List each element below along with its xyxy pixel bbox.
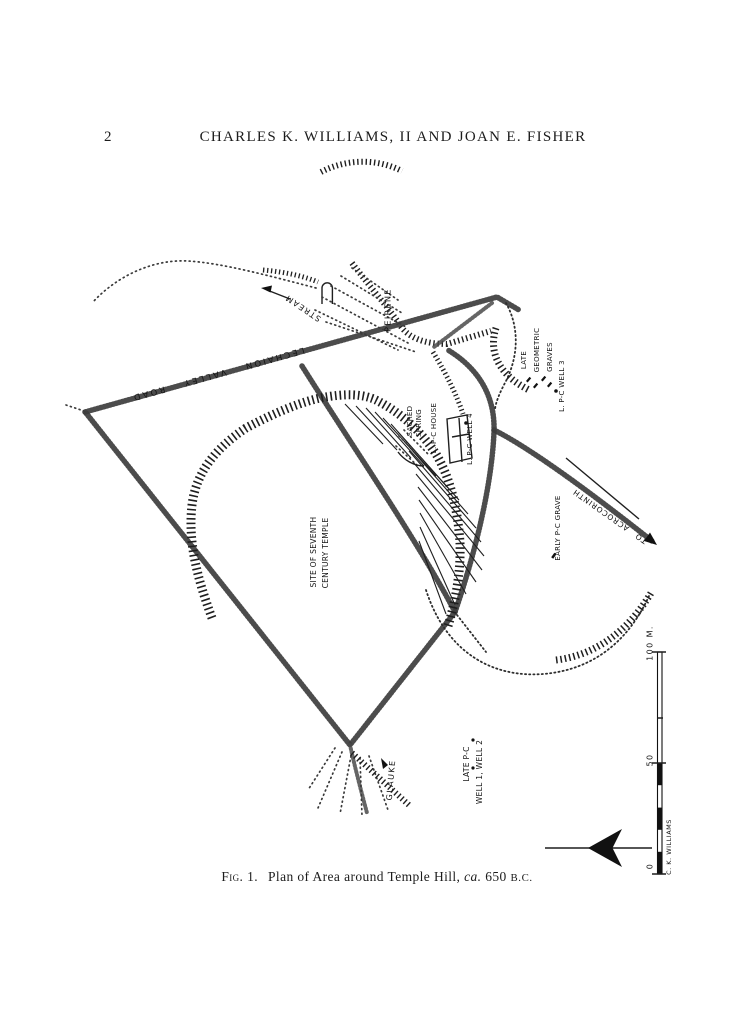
caption-year: 650 <box>485 869 506 884</box>
label-late-pc: LATE P-C <box>462 746 471 781</box>
label-site-line1: SITE OF SEVENTH <box>309 517 318 588</box>
road-end-dotted <box>66 405 84 411</box>
label-spring: SPRING <box>415 409 423 437</box>
label-stream: STREAM <box>283 293 322 324</box>
label-wells-1-2: WELL 1, WELL 2 <box>475 740 484 804</box>
label-site-line2: CENTURY TEMPLE <box>321 518 330 589</box>
figure-number: Fig. 1. <box>221 869 258 884</box>
map-labels: STREAM PEIRENE LECHAION VALLEY ROAD LATE… <box>130 288 649 804</box>
geometric-grave-markers <box>526 376 552 389</box>
cartographer-credit: C. K. WILLIAMS <box>665 819 673 875</box>
well-markers <box>464 389 558 769</box>
label-well3: L. P-C WELL 3 <box>558 360 566 412</box>
figure-caption: Fig. 1.Plan of Area around Temple Hill, … <box>0 869 754 885</box>
stream-arrowhead <box>261 286 272 293</box>
scale-100-label: 100 M. <box>646 625 655 661</box>
label-late: LATE <box>520 351 528 369</box>
crossroads-to-glauke-road <box>350 612 455 745</box>
label-early-pc-grave: EARLY P-C GRAVE <box>554 495 562 560</box>
label-peirene: PEIRENE <box>384 288 393 332</box>
glauke-road-south <box>350 745 367 813</box>
label-lechaion-valley-road: LECHAION VALLEY ROAD <box>130 345 305 403</box>
label-lpc-house: L. P-C HOUSE <box>430 403 438 453</box>
label-geometric: GEOMETRIC <box>533 328 541 373</box>
north-arrow <box>545 829 652 867</box>
road-north-of-crossroads <box>448 350 494 612</box>
northeast-boundary-dotted <box>495 303 516 409</box>
glauke-bank-hachure <box>352 753 410 806</box>
label-graves: GRAVES <box>546 342 554 372</box>
scale-bar: 100 M. 50 0 C. K. WILLIAMS <box>646 625 674 875</box>
caption-circa: ca. <box>464 869 481 884</box>
scanned-paper-page: 2 CHARLES K. WILLIAMS, II AND JOAN E. FI… <box>0 0 754 1024</box>
stream-upper-bank-hachure <box>321 162 402 172</box>
scale-50-label: 50 <box>646 754 655 767</box>
crossroads-fade-dotted <box>457 615 486 652</box>
label-well4: L. P-C WELL 4 <box>466 413 474 465</box>
early-grave-hill-hachure <box>556 593 651 660</box>
label-to-acrocorinth: TO ACROCORINTH <box>571 487 649 546</box>
label-sacred: SACRED <box>406 406 414 437</box>
caption-era: B.C. <box>510 872 532 884</box>
glauke-stipple <box>308 748 388 816</box>
caption-body: Plan of Area around Temple Hill, <box>268 869 460 884</box>
